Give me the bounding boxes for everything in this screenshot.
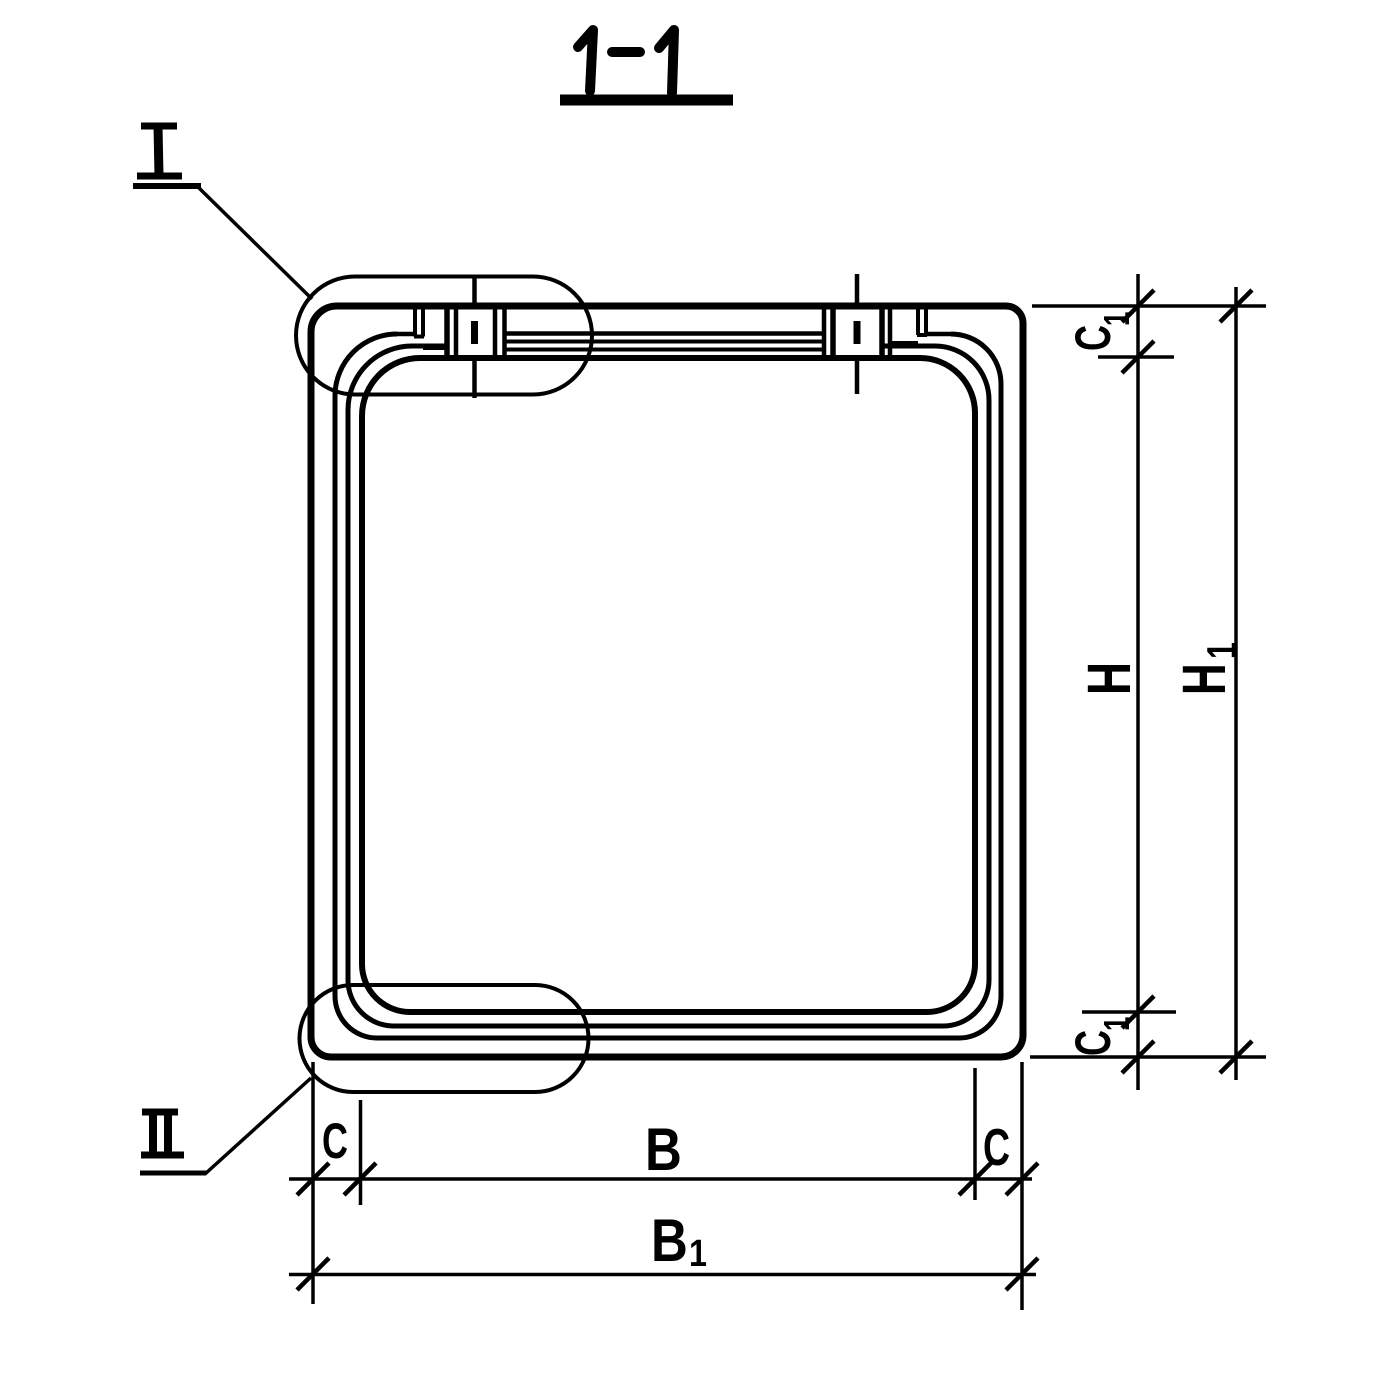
- svg-text:1: 1: [1198, 642, 1245, 659]
- svg-text:B: B: [645, 1116, 682, 1183]
- svg-text:H: H: [1171, 663, 1239, 695]
- svg-text:C: C: [983, 1118, 1010, 1177]
- svg-text:1: 1: [1097, 312, 1137, 326]
- svg-text:C: C: [322, 1114, 348, 1169]
- svg-text:H: H: [1076, 662, 1144, 695]
- svg-text:C: C: [1066, 1030, 1121, 1056]
- svg-text:1: 1: [1097, 1017, 1137, 1031]
- svg-text:1: 1: [689, 1233, 707, 1275]
- svg-text:C: C: [1066, 325, 1121, 351]
- svg-text:B: B: [651, 1207, 688, 1274]
